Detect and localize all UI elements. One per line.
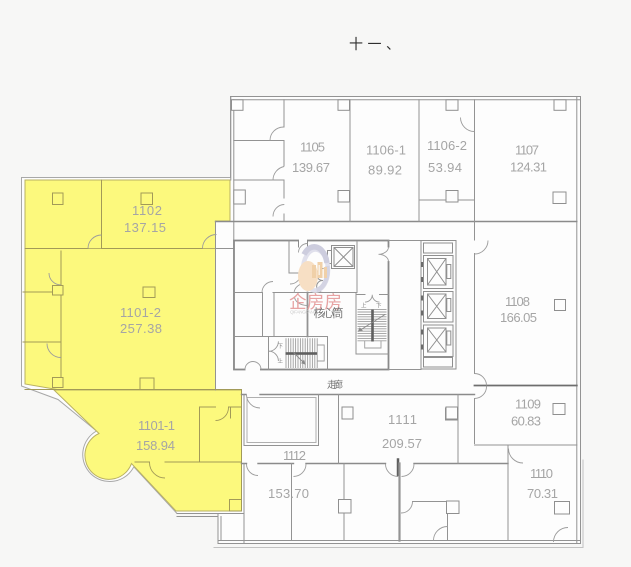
svg-text:53.94: 53.94 [428,160,462,175]
svg-text:核心筒: 核心筒 [314,306,344,320]
svg-text:158.94: 158.94 [136,438,175,453]
svg-text:257.38: 257.38 [120,321,162,336]
svg-text:1107: 1107 [515,143,539,158]
svg-text:下: 下 [376,303,382,310]
svg-text:下: 下 [278,343,284,350]
svg-text:上: 上 [361,302,367,310]
svg-text:1109: 1109 [515,397,541,412]
svg-text:137.15: 137.15 [124,220,166,235]
svg-text:1105: 1105 [300,140,325,155]
svg-text:153.70: 153.70 [268,486,309,501]
svg-text:1112: 1112 [283,448,306,463]
svg-text:上: 上 [278,357,284,365]
svg-text:209.57: 209.57 [382,436,422,451]
svg-text:1106-2: 1106-2 [427,138,467,153]
svg-text:1108: 1108 [505,294,530,309]
svg-text:1106-1: 1106-1 [366,143,406,158]
svg-text:124.31: 124.31 [510,160,547,175]
svg-text:70.31: 70.31 [527,486,558,501]
svg-text:60.83: 60.83 [511,414,541,429]
svg-text:1101-1: 1101-1 [138,418,175,433]
svg-text:十一、: 十一、 [349,36,405,52]
svg-text:1111: 1111 [388,412,417,427]
svg-text:走廊: 走廊 [327,379,343,391]
svg-text:89.92: 89.92 [368,163,402,178]
svg-text:1101-2: 1101-2 [120,305,161,320]
svg-text:1102: 1102 [132,203,162,218]
svg-text:1110: 1110 [530,466,553,481]
svg-text:139.67: 139.67 [292,160,330,175]
svg-text:166.05: 166.05 [500,310,537,325]
